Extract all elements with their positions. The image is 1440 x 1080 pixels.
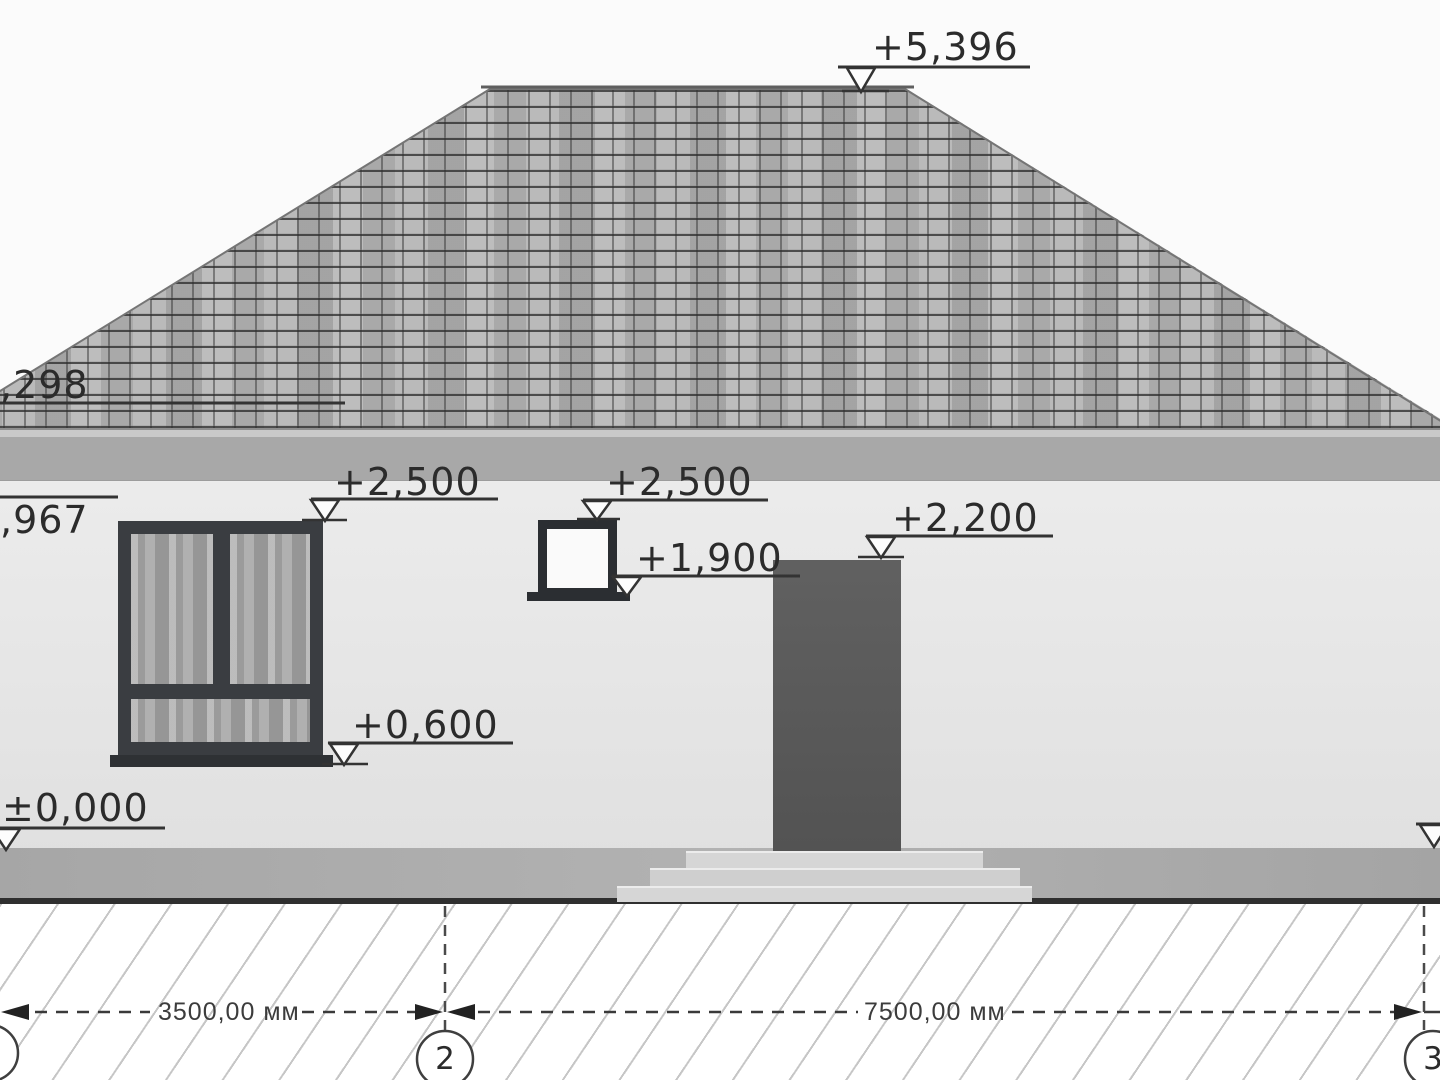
entrance-door	[773, 560, 901, 851]
window-left-pane-bottom	[131, 699, 310, 742]
elevation-label-window-small-bottom: +1,900	[636, 539, 783, 577]
window-left	[118, 521, 323, 755]
dimension-label-left: 3500,00 мм	[158, 999, 300, 1027]
elevation-label-wall-top-left: ,967	[0, 501, 89, 539]
ground-hatch-area	[0, 904, 1440, 1080]
elevation-label-door-top: +2,200	[892, 499, 1039, 537]
hipped-roof-tiles	[0, 86, 1440, 428]
entrance-step-middle	[650, 868, 1020, 886]
window-left-sill	[110, 755, 333, 767]
window-small	[538, 520, 617, 597]
elevation-label-ground-zero: ±0,000	[2, 789, 149, 827]
dimension-label-right: 7500,00 мм	[864, 999, 1006, 1027]
elevation-label-roof-peak: +5,396	[872, 28, 1019, 66]
entrance-step-bottom	[617, 886, 1032, 902]
entrance-step-top	[686, 851, 983, 868]
axis-number-2: 2	[425, 1044, 465, 1075]
elevation-label-window-left-bottom: +0,600	[352, 706, 499, 744]
window-small-pane	[547, 529, 608, 588]
window-left-pane-top-right	[230, 534, 310, 684]
elevation-label-window-small-top: +2,500	[606, 463, 753, 501]
axis-number-3: 3	[1413, 1044, 1440, 1075]
elevation-drawing: +5,396 ,298 ,967 +2,500 +2,500 +1,900 +2…	[0, 0, 1440, 1080]
window-small-sill	[527, 592, 630, 601]
elevation-label-eave-left: ,298	[0, 366, 89, 404]
elevation-label-window-left-top: +2,500	[334, 463, 481, 501]
window-left-pane-top-left	[131, 534, 213, 684]
